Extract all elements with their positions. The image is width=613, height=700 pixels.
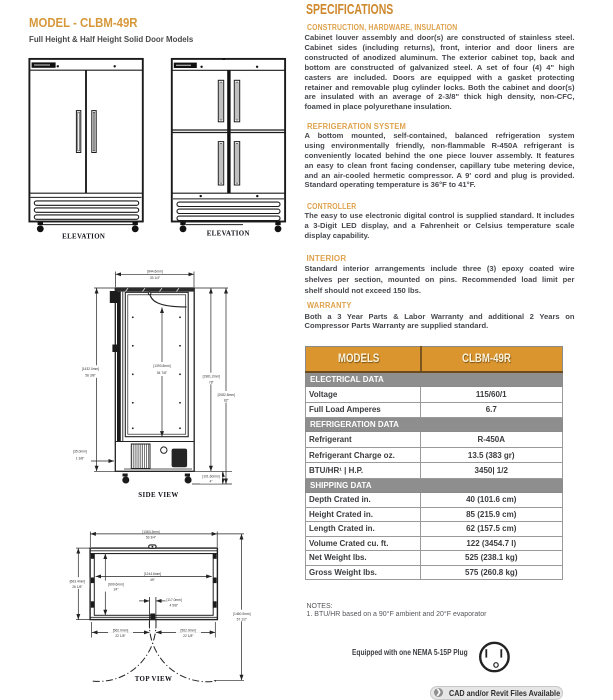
svg-text:22 1/8": 22 1/8" (183, 634, 194, 638)
svg-text:56 3/8": 56 3/8" (85, 374, 96, 378)
svg-text:TOP VIEW: TOP VIEW (135, 676, 173, 683)
svg-text:[2082.8mm]: [2082.8mm] (218, 393, 235, 397)
svg-text:[1460.5mm]: [1460.5mm] (233, 612, 250, 616)
svg-text:26 1/8": 26 1/8" (72, 585, 83, 589)
svg-text:22 1/8": 22 1/8" (115, 634, 126, 638)
svg-text:78": 78" (209, 380, 215, 384)
svg-text:57 1/2": 57 1/2" (237, 617, 248, 621)
svg-text:49": 49" (150, 578, 156, 582)
svg-text:54 7/8": 54 7/8" (157, 371, 168, 375)
svg-text:[562.0mm]: [562.0mm] (113, 629, 129, 633)
svg-text:[663.4mm]: [663.4mm] (70, 579, 86, 583)
svg-text:ELEVATION: ELEVATION (62, 233, 105, 240)
svg-text:4 5/8": 4 5/8" (170, 603, 179, 607)
svg-text:[844.6mm]: [844.6mm] (147, 270, 163, 274)
svg-text:[609.6mm]: [609.6mm] (108, 582, 124, 586)
svg-text:[1363.3mm]: [1363.3mm] (142, 530, 159, 534)
svg-text:[101.60mm]: [101.60mm] (202, 474, 219, 478)
svg-text:[117.0mm]: [117.0mm] (167, 598, 182, 602)
svg-text:[1393.8mm]: [1393.8mm] (153, 364, 170, 368)
svg-text:[1981.2mm]: [1981.2mm] (203, 375, 220, 379)
svg-text:[1432.0mm]: [1432.0mm] (82, 367, 99, 371)
svg-text:[35.0mm]: [35.0mm] (73, 450, 87, 454)
svg-text:1 3/8": 1 3/8" (76, 456, 85, 460)
svg-text:24": 24" (114, 588, 120, 592)
svg-text:[562.0mm]: [562.0mm] (181, 629, 197, 633)
svg-text:53 3/4": 53 3/4" (146, 536, 157, 540)
svg-text:[1244.6mm]: [1244.6mm] (144, 572, 161, 576)
svg-text:ELEVATION: ELEVATION (207, 231, 250, 238)
svg-text:SIDE VIEW: SIDE VIEW (138, 492, 178, 499)
svg-text:33 1/4": 33 1/4" (150, 276, 161, 280)
svg-text:82": 82" (224, 399, 230, 403)
